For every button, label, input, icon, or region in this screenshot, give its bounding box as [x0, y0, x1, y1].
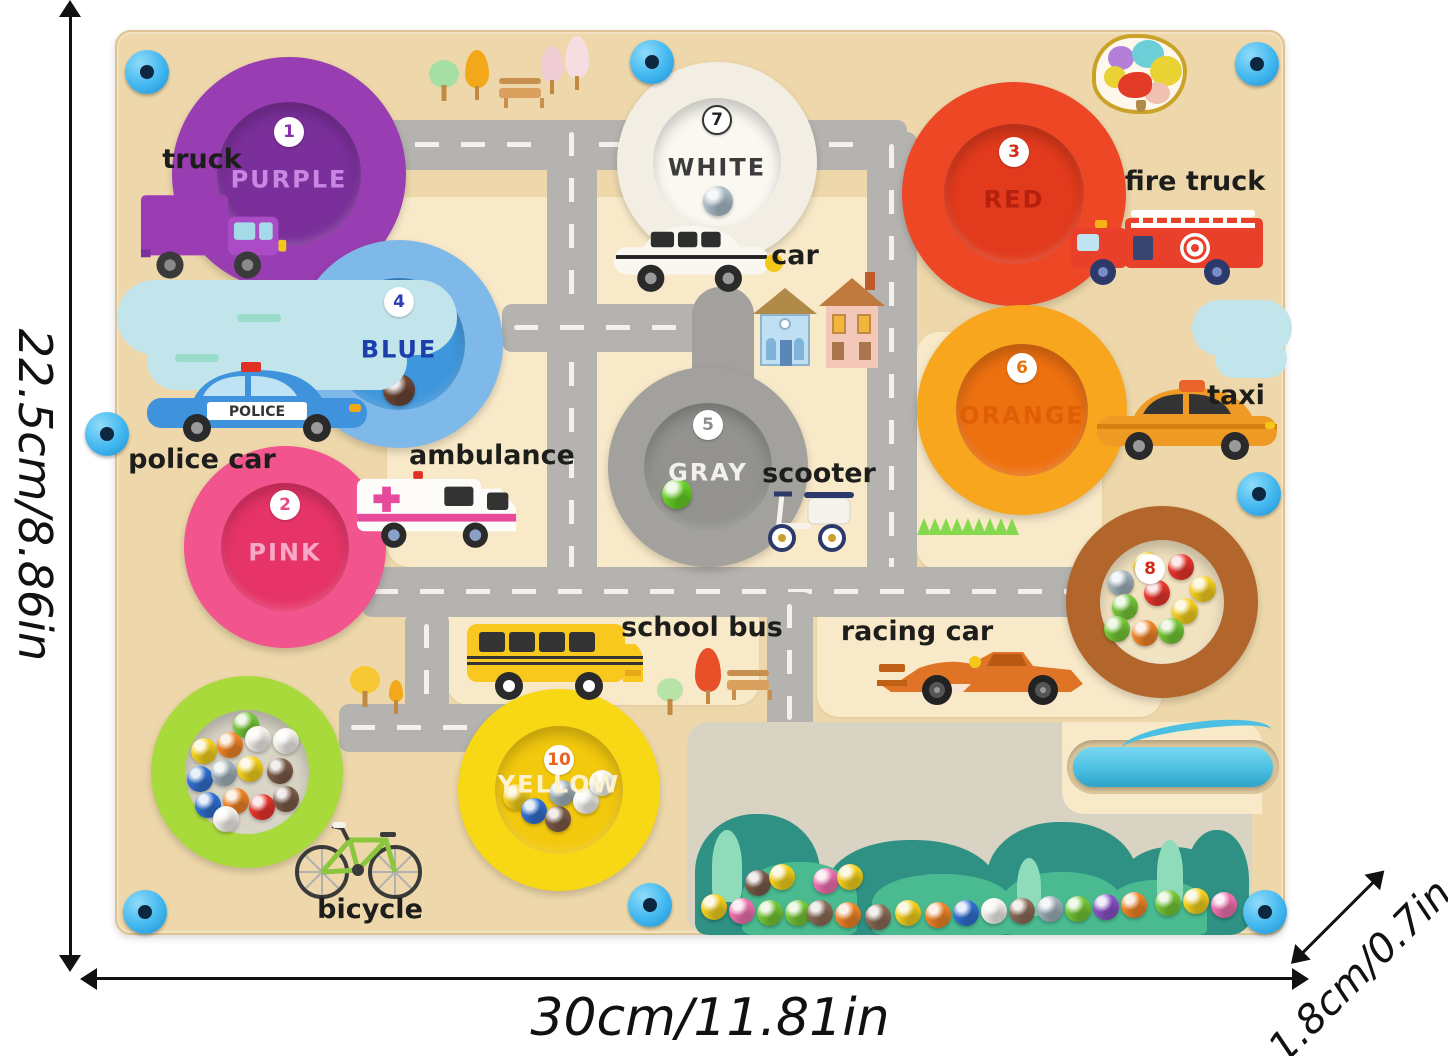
screw	[1243, 890, 1287, 934]
magnetic-ball[interactable]	[1211, 892, 1237, 918]
tree-icon	[541, 46, 563, 82]
label-truck: truck	[162, 144, 241, 175]
magnetic-ball[interactable]	[1168, 554, 1194, 580]
color-name: PINK	[195, 539, 375, 567]
bench-icon	[499, 88, 541, 98]
maze-road[interactable]	[502, 304, 717, 352]
maze-road[interactable]	[547, 120, 597, 617]
screw	[1235, 42, 1279, 86]
width-dimension-label: 30cm/11.81in	[430, 988, 990, 1048]
magnetic-ball[interactable]	[1037, 896, 1063, 922]
ambulance-graphic	[355, 464, 520, 552]
magnetic-ball[interactable]	[745, 870, 771, 896]
maze-road[interactable]	[362, 567, 1087, 617]
magnetic-ball[interactable]	[757, 900, 783, 926]
color-name: YELLOW	[469, 770, 649, 798]
magnetic-ball[interactable]	[813, 868, 839, 894]
number-badge: 2	[270, 490, 300, 520]
grass-decoration	[917, 518, 1016, 535]
number-badge: 3	[999, 137, 1029, 167]
screw	[628, 883, 672, 927]
screw	[85, 412, 129, 456]
magnetic-ball[interactable]	[865, 904, 891, 930]
magnetic-ball[interactable]	[213, 806, 239, 832]
product-image: 1 PURPLE 7 WHITE 3 RED 4 BLUE 5	[0, 0, 1448, 1056]
cloud-squiggle	[237, 314, 281, 322]
brown-well	[1100, 540, 1224, 664]
number-badge: 8	[1135, 554, 1165, 584]
magnetic-ball[interactable]	[1121, 892, 1147, 918]
label-ambulance: ambulance	[409, 440, 575, 471]
number-badge: 4	[384, 287, 414, 317]
magnetic-ball[interactable]	[1155, 890, 1181, 916]
height-dimension-label: 22.5cm/8.86in	[8, 280, 62, 710]
label-car: car	[771, 240, 819, 271]
magnetic-ball[interactable]	[1009, 898, 1035, 924]
pink-house-icon	[819, 272, 885, 368]
label-police-car: police car	[128, 444, 276, 475]
brain-logo	[1092, 34, 1187, 114]
magnetic-ball[interactable]	[273, 728, 299, 754]
number-badge: 7	[702, 105, 732, 135]
tree-icon	[429, 60, 459, 88]
color-name: ORANGE	[932, 402, 1112, 430]
maze-circle-yellow[interactable]: 10 YELLOW	[458, 689, 660, 891]
scooter-graphic	[752, 482, 862, 554]
magnetic-ball[interactable]	[1093, 894, 1119, 920]
magnetic-ball[interactable]	[807, 900, 833, 926]
magnetic-ball[interactable]	[837, 864, 863, 890]
car-graphic	[612, 217, 772, 297]
tree-icon	[389, 680, 403, 702]
screw	[630, 40, 674, 84]
magnetic-ball[interactable]	[835, 902, 861, 928]
magnetic-ball[interactable]	[1158, 618, 1184, 644]
screw	[125, 50, 169, 94]
magnetic-ball[interactable]	[1065, 896, 1091, 922]
label-taxi: taxi	[1207, 380, 1265, 411]
screw	[1237, 472, 1281, 516]
magnetic-ball[interactable]	[703, 186, 733, 216]
magnetic-ball[interactable]	[1132, 620, 1158, 646]
magnetic-ball[interactable]	[249, 794, 275, 820]
tree-icon	[657, 678, 683, 702]
green-well	[185, 710, 309, 834]
magnetic-ball[interactable]	[1183, 888, 1209, 914]
label-fire-truck: fire truck	[1125, 166, 1265, 197]
maze-circle-brown[interactable]: 8	[1066, 506, 1258, 698]
magnetic-ball[interactable]	[217, 732, 243, 758]
magnetic-ball[interactable]	[545, 806, 571, 832]
screw	[123, 890, 167, 934]
blue-house-icon	[753, 288, 817, 368]
label-scooter: scooter	[762, 458, 876, 489]
school-bus-graphic	[465, 614, 645, 704]
truck-graphic	[139, 182, 294, 287]
magnetic-ball[interactable]	[769, 864, 795, 890]
arrow-left-icon	[80, 968, 97, 990]
number-badge: 5	[693, 410, 723, 440]
number-badge: 1	[274, 117, 304, 147]
magnetic-ball[interactable]	[729, 898, 755, 924]
number-badge: 6	[1007, 353, 1037, 383]
maze-board: 1 PURPLE 7 WHITE 3 RED 4 BLUE 5	[115, 30, 1285, 935]
magnetic-ball[interactable]	[237, 756, 263, 782]
magnetic-ball[interactable]	[701, 894, 727, 920]
magnetic-ball[interactable]	[521, 798, 547, 824]
police-banner: POLICE	[229, 404, 285, 420]
magnetic-ball[interactable]	[187, 766, 213, 792]
fire-truck-graphic	[1067, 200, 1267, 288]
width-dimension-line	[92, 977, 1296, 980]
bicycle-graphic	[292, 804, 427, 904]
arrow-right-icon	[1292, 968, 1309, 990]
bench-icon	[727, 680, 769, 690]
police-car-graphic: POLICE	[145, 360, 370, 445]
tree-icon	[350, 666, 380, 694]
racing-car-graphic	[875, 640, 1090, 708]
arrow-down-icon	[59, 955, 81, 972]
magnetic-ball[interactable]	[1104, 616, 1130, 642]
magnetic-ball[interactable]	[267, 758, 293, 784]
color-name: WHITE	[627, 154, 807, 182]
magnetic-ball[interactable]	[895, 900, 921, 926]
magnetic-ball[interactable]	[981, 898, 1007, 924]
tree-icon	[565, 36, 589, 78]
magnetic-ball[interactable]	[925, 902, 951, 928]
magnetic-ball[interactable]	[191, 738, 217, 764]
label-school-bus: school bus	[621, 612, 783, 643]
label-racing-car: racing car	[841, 616, 993, 647]
magnetic-ball[interactable]	[1108, 570, 1134, 596]
magnetic-ball[interactable]	[245, 726, 271, 752]
arrow-up-icon	[59, 0, 81, 17]
magnetic-ball[interactable]	[211, 760, 237, 786]
height-dimension-line	[69, 14, 72, 960]
label-bicycle: bicycle	[317, 894, 423, 925]
cloud-decoration	[1215, 340, 1287, 378]
magnetic-ball[interactable]	[953, 900, 979, 926]
magnetic-ball[interactable]	[1190, 576, 1216, 602]
tree-icon	[465, 50, 489, 88]
